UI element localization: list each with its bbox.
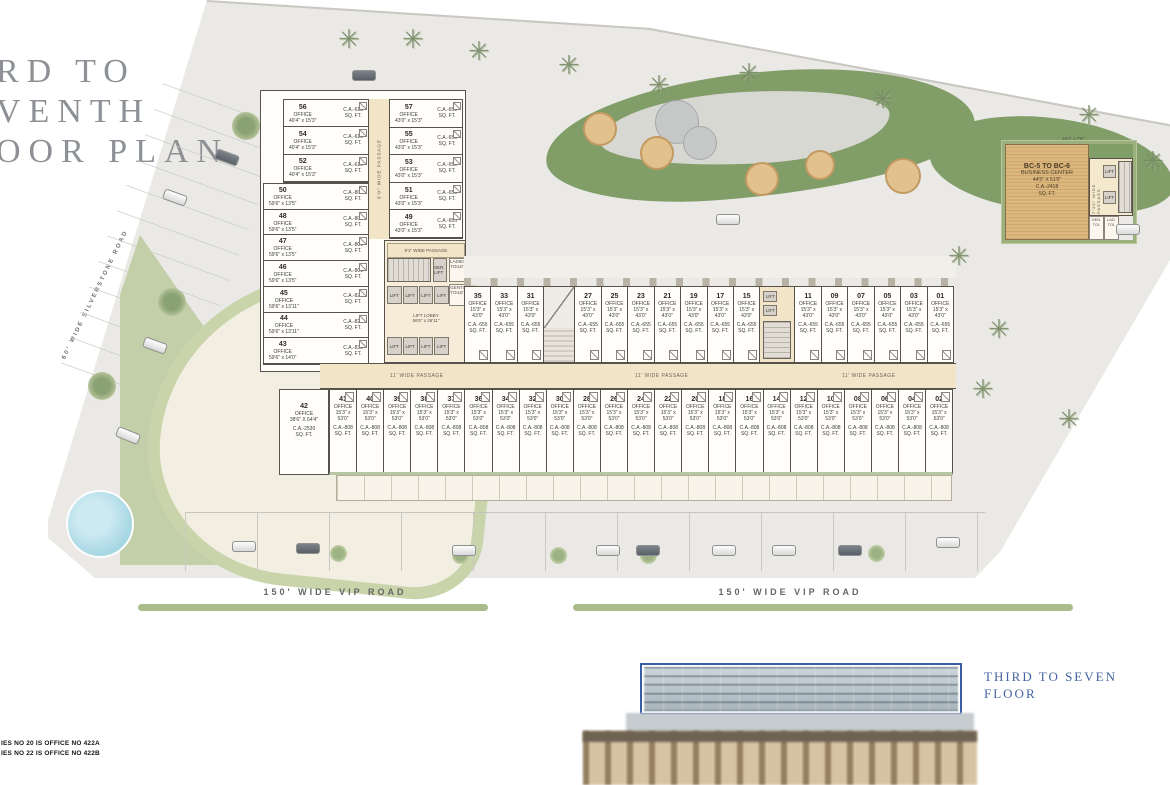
unit-number: 43	[269, 340, 296, 349]
unit-number: 27	[575, 292, 600, 301]
street-tree-icon	[330, 545, 347, 562]
palm-tree-icon: ✳	[402, 26, 424, 52]
unit-number: 41	[330, 395, 356, 404]
unit-number: 33	[491, 292, 516, 301]
seating-circle	[805, 150, 835, 180]
unit-dimensions: 59'6" x 13'5"	[269, 227, 296, 233]
office-unit-42: 42 OFFICE 38'6" X 64'4" C.A.-2530 SQ. FT…	[279, 389, 329, 475]
unit-number: 47	[269, 237, 296, 246]
office-unit: 34 OFFICE 15'3" x 53'0" C.A.-808 SQ. FT.	[492, 390, 519, 472]
passage-label: 11' WIDE PASSAGE	[635, 373, 689, 379]
service-lift: SER. LIFT	[433, 258, 447, 282]
office-unit: 47OFFICE59'6" x 13'5" C.A.-801SQ. FT.	[264, 235, 368, 261]
bc-toilets: GEN. TOI. LAD. TOI.	[1089, 216, 1119, 240]
office-unit: 54OFFICE40'4" x 15'3" C.A.-615SQ. FT.	[284, 127, 368, 154]
office-row-top: 35 OFFICE 15'3" x 43'0" C.A.-655 SQ. FT.…	[464, 286, 954, 363]
bc-title: BC-5 TO BC-6	[1006, 163, 1088, 170]
office-unit: 22 OFFICE 15'3" x 53'0" C.A.-808 SQ. FT.	[654, 390, 681, 472]
staircase	[543, 287, 574, 362]
unit-dimensions: 59'6" x 14'0"	[269, 355, 296, 361]
lift-bank-top: LIFT LIFT LIFT LIFT	[387, 286, 449, 304]
unit-number: 52	[289, 157, 316, 166]
unit-number: 44	[269, 314, 299, 323]
office-unit: 45OFFICE59'6" x 13'11" C.A.-829SQ. FT.	[264, 287, 368, 313]
palm-tree-icon: ✳	[948, 243, 970, 269]
unit-number: 15	[734, 292, 759, 301]
unit-dimensions: 59'6" x 13'11"	[269, 329, 299, 335]
unit-dimensions: 40'4" x 15'3"	[289, 118, 316, 124]
office-unit: 12 OFFICE 15'3" x 53'0" C.A.-808 SQ. FT.	[790, 390, 817, 472]
unit-area: C.A.-832	[343, 345, 363, 351]
seating-circle	[640, 136, 674, 170]
office-unit: 17 OFFICE 15'3" x 43'0" C.A.-655 SQ. FT.	[707, 287, 733, 362]
core-passage-label: 9'1" WIDE PASSAGE	[387, 243, 465, 258]
unit-number: 37	[438, 395, 464, 404]
unit-number: 34	[493, 395, 519, 404]
street-tree-icon	[868, 545, 885, 562]
unit-number: 16	[736, 395, 762, 404]
tree-icon	[232, 112, 260, 140]
unit-dimensions: 43'0" x 15'3"	[395, 228, 422, 234]
unit-number: 19	[681, 292, 706, 301]
office-unit: 46OFFICE59'6" x 13'5" C.A.-801SQ. FT.	[264, 261, 368, 287]
staircase	[1118, 161, 1132, 213]
palm-tree-icon: ✳	[648, 72, 670, 98]
unit-dimensions: 40'4" x 15'3"	[289, 172, 316, 178]
office-unit: 16 OFFICE 15'3" x 53'0" C.A.-808 SQ. FT.	[735, 390, 762, 472]
unit-number: 02	[926, 395, 952, 404]
bc-dimensions: 44'5" X 51'0"	[1006, 177, 1088, 184]
unit-number: 50	[269, 186, 296, 195]
elevation-ledge	[626, 713, 974, 733]
lift: LIFT	[403, 286, 418, 304]
unit-number: 40	[357, 395, 383, 404]
lift: LIFT	[1103, 165, 1116, 178]
unit-number: 21	[655, 292, 680, 301]
unit-number: 54	[289, 130, 316, 139]
lift: LIFT	[403, 337, 418, 355]
palm-tree-icon: ✳	[558, 52, 580, 78]
unit-area: C.A.-655	[437, 135, 457, 141]
office-unit: 53OFFICE43'0" x 15'3" C.A.-655SQ. FT.	[390, 155, 462, 183]
office-row-bottom: 41 OFFICE 15'3" x 53'0" C.A.-808 SQ. FT.…	[329, 389, 953, 475]
office-unit: 30 OFFICE 15'3" x 53'0" C.A.-808 SQ. FT.	[546, 390, 573, 472]
unit-number: 11	[795, 292, 820, 301]
unit-dimensions: 59'6" x 13'5"	[269, 201, 296, 207]
front-walkway	[464, 256, 956, 278]
unit-number: 36	[465, 395, 491, 404]
unit-number: 12	[791, 395, 817, 404]
office-unit: 32 OFFICE 15'3" x 53'0" C.A.-808 SQ. FT.	[519, 390, 546, 472]
lift: LIFT	[434, 286, 449, 304]
palm-tree-icon: ✳	[468, 38, 490, 64]
podium-fascia	[583, 731, 977, 742]
wing-passage: 9'0" WIDE PASSAGE	[369, 99, 389, 239]
unit-number: 51	[395, 186, 422, 195]
office-unit: 18 OFFICE 15'3" x 53'0" C.A.-808 SQ. FT.	[708, 390, 735, 472]
car-icon	[352, 70, 376, 81]
car-icon	[712, 545, 736, 556]
business-center-main: BC-5 TO BC-6 BUSINESS CENTER 44'5" X 51'…	[1005, 144, 1089, 240]
unit-number: 31	[518, 292, 543, 301]
office-unit: 37 OFFICE 15'3" x 53'0" C.A.-808 SQ. FT.	[437, 390, 464, 472]
unit-dimensions: 43'0" x 15'3"	[395, 173, 422, 179]
tree-icon	[88, 372, 116, 400]
unit-number: 46	[269, 263, 296, 272]
unit-number: 05	[875, 292, 900, 301]
office-unit: 23 OFFICE 15'3" x 43'0" C.A.-655 SQ. FT.	[627, 287, 653, 362]
office-unit: 24 OFFICE 15'3" x 53'0" C.A.-808 SQ. FT.	[627, 390, 654, 472]
unit-number: 08	[845, 395, 871, 404]
office-unit: 25 OFFICE 15'3" x 43'0" C.A.-655 SQ. FT.	[601, 287, 627, 362]
elevation-label: THIRD TO SEVEN FLOOR	[984, 668, 1164, 702]
gents-toilet: GEN. TOI.	[1089, 216, 1104, 240]
floor-plan-page: RD TOVENTHOOR PLAN 60' WIDE SILVERSTONE …	[0, 0, 1170, 785]
car-icon	[596, 545, 620, 556]
office-unit: 41 OFFICE 15'3" x 53'0" C.A.-808 SQ. FT.	[330, 390, 356, 472]
passage-label: 11' WIDE PASSAGE	[390, 373, 444, 379]
office-unit: 19 OFFICE 15'3" x 43'0" C.A.-655 SQ. FT.	[680, 287, 706, 362]
office-unit: 05 OFFICE 15'3" x 43'0" C.A.-655 SQ. FT.	[874, 287, 900, 362]
lift-lobby-label: LIFT LOBBY56'6" x 26'11"	[387, 313, 465, 323]
office-unit: 20 OFFICE 15'3" x 53'0" C.A.-808 SQ. FT.	[681, 390, 708, 472]
lift: LIFT	[434, 337, 449, 355]
lift-core: 9'1" WIDE PASSAGE SER. LIFT LADIES TOILE…	[384, 240, 466, 363]
wing-column-b: 57OFFICE43'0" x 15'3" C.A.-655SQ. FT. 55…	[389, 99, 463, 239]
unit-number: 09	[822, 292, 847, 301]
unit-number: 14	[764, 395, 790, 404]
passage-label: 11' WIDE PASSAGE	[842, 373, 896, 379]
palm-tree-icon: ✳	[1142, 148, 1164, 174]
office-unit: 55OFFICE43'0" x 15'3" C.A.-655SQ. FT.	[390, 128, 462, 156]
office-unit: 57OFFICE43'0" x 15'3" C.A.-655SQ. FT.	[390, 100, 462, 128]
car-icon	[636, 545, 660, 556]
unit-number: 24	[628, 395, 654, 404]
unit-number: 56	[289, 103, 316, 112]
title-line-2: VENTH	[0, 93, 151, 130]
unit-number: 22	[655, 395, 681, 404]
mid-lift-core: LIFT LIFT	[759, 287, 794, 362]
office-unit: 39 OFFICE 15'3" x 53'0" C.A.-808 SQ. FT.	[383, 390, 410, 472]
car-icon	[838, 545, 862, 556]
office-unit: 14 OFFICE 15'3" x 53'0" C.A.-808 SQ. FT.	[763, 390, 790, 472]
office-unit: 51OFFICE43'0" x 15'3" C.A.-655SQ. FT.	[390, 183, 462, 211]
parking-stalls	[185, 512, 985, 571]
bc-subtitle: BUSINESS CENTER	[1006, 170, 1088, 177]
unit-dimensions: 43'0" x 15'3"	[395, 201, 422, 207]
office-unit: 43OFFICE59'6" x 14'0" C.A.-832SQ. FT.	[264, 338, 368, 364]
unit-number: 10	[818, 395, 844, 404]
office-unit: 36 OFFICE 15'3" x 53'0" C.A.-808 SQ. FT.	[464, 390, 491, 472]
staircase	[387, 258, 431, 282]
office-unit: 27 OFFICE 15'3" x 43'0" C.A.-655 SQ. FT.	[574, 287, 600, 362]
unit-number: 28	[574, 395, 600, 404]
unit-number: 53	[395, 158, 422, 167]
unit-area: C.A.-615	[343, 162, 363, 168]
vip-road-label-left: 150' WIDE VIP ROAD	[240, 587, 430, 597]
central-passage: 11' WIDE PASSAGE 11' WIDE PASSAGE 11' WI…	[320, 363, 956, 389]
palm-tree-icon: ✳	[972, 376, 994, 402]
unit-dimensions: 40'4" x 15'3"	[289, 145, 316, 151]
unit-number: 20	[682, 395, 708, 404]
vip-road-label-right: 150' WIDE VIP ROAD	[695, 587, 885, 597]
office-unit: 02 OFFICE 15'3" x 53'0" C.A.-808 SQ. FT.	[925, 390, 952, 472]
office-unit: 44OFFICE59'6" x 13'11" C.A.-829SQ. FT.	[264, 313, 368, 339]
unit-number: 42	[280, 402, 328, 411]
lift: LIFT	[419, 337, 434, 355]
car-icon	[716, 214, 740, 225]
lift: LIFT	[763, 305, 777, 316]
unit-number: 17	[708, 292, 733, 301]
unit-number: 04	[899, 395, 925, 404]
office-unit: 28 OFFICE 15'3" x 53'0" C.A.-808 SQ. FT.	[573, 390, 600, 472]
unit-number: 25	[602, 292, 627, 301]
unit-number: 45	[269, 289, 299, 298]
lift: LIFT	[387, 286, 402, 304]
unit-dimensions: 38'6" X 64'4"	[280, 417, 328, 423]
office-unit: 04 OFFICE 15'3" x 53'0" C.A.-808 SQ. FT.	[898, 390, 925, 472]
seating-circle	[885, 158, 921, 194]
unit-area: C.A.-801	[343, 268, 363, 274]
road-median	[573, 604, 1073, 611]
office-unit: 40 OFFICE 15'3" x 53'0" C.A.-808 SQ. FT.	[356, 390, 383, 472]
street-tree-icon	[550, 547, 567, 564]
office-unit: 09 OFFICE 15'3" x 43'0" C.A.-655 SQ. FT.	[821, 287, 847, 362]
canopy-circle	[683, 126, 717, 160]
unit-number: 48	[269, 212, 296, 221]
unit-number: 01	[928, 292, 953, 301]
footnotes: IES NO 20 IS OFFICE NO 422A IES NO 22 IS…	[1, 739, 100, 759]
office-unit: 56OFFICE40'4" x 15'3" C.A.-615SQ. FT.	[284, 100, 368, 127]
office-unit: 26 OFFICE 15'3" x 53'0" C.A.-808 SQ. FT.	[600, 390, 627, 472]
bc-area: C.A.-2418	[1006, 184, 1088, 191]
car-icon	[936, 537, 960, 548]
palm-tree-icon: ✳	[338, 26, 360, 52]
lift: LIFT	[1103, 191, 1116, 204]
unit-number: 26	[601, 395, 627, 404]
bc-passage-label: 7'10" WIDE PASSAGE	[1091, 160, 1101, 214]
palm-tree-icon: ✳	[1078, 102, 1100, 128]
pool	[66, 490, 134, 558]
office-unit: 49OFFICE43'0" x 15'3" C.A.-655SQ. FT.	[390, 210, 462, 238]
unit-dimensions: 59'6" x 13'5"	[269, 252, 296, 258]
footnote-line-1: IES NO 20 IS OFFICE NO 422A	[1, 739, 100, 749]
unit-number: 39	[384, 395, 410, 404]
unit-dimensions: 59'6" x 13'5"	[269, 278, 296, 284]
unit-dimensions: 43'0" x 15'3"	[395, 145, 422, 151]
unit-dimensions: 43'0" x 15'3"	[395, 118, 422, 124]
car-icon	[232, 541, 256, 552]
car-icon	[772, 545, 796, 556]
seating-circle	[583, 112, 617, 146]
unit-number: 23	[628, 292, 653, 301]
lift-bank-bottom: LIFT LIFT LIFT LIFT	[387, 337, 449, 355]
unit-number: 06	[872, 395, 898, 404]
wing-column-a-bottom: 50OFFICE59'6" x 13'5" C.A.-801SQ. FT. 48…	[263, 183, 369, 365]
unit-number: 55	[395, 130, 422, 139]
office-unit: 48OFFICE59'6" x 13'5" C.A.-801SQ. FT.	[264, 210, 368, 236]
office-unit: 21 OFFICE 15'3" x 43'0" C.A.-655 SQ. FT.	[654, 287, 680, 362]
car-icon	[452, 545, 476, 556]
office-unit: 11 OFFICE 15'3" x 43'0" C.A.-655 SQ. FT.	[794, 287, 820, 362]
unit-number: 57	[395, 103, 422, 112]
lift: LIFT	[387, 337, 402, 355]
unit-number: 35	[465, 292, 490, 301]
road-median	[138, 604, 488, 611]
unit-number: 49	[395, 213, 422, 222]
tree-icon	[158, 288, 186, 316]
footnote-line-2: IES NO 22 IS OFFICE NO 422B	[1, 749, 100, 759]
unit-number: 18	[709, 395, 735, 404]
elevation-highlight-box	[640, 663, 962, 715]
office-unit: 52OFFICE40'4" x 15'3" C.A.-615SQ. FT.	[284, 155, 368, 182]
office-unit: 06 OFFICE 15'3" x 53'0" C.A.-808 SQ. FT.	[871, 390, 898, 472]
office-unit: 10 OFFICE 15'3" x 53'0" C.A.-808 SQ. FT.	[817, 390, 844, 472]
office-unit: 50OFFICE59'6" x 13'5" C.A.-801SQ. FT.	[264, 184, 368, 210]
lift: LIFT	[763, 291, 777, 302]
office-unit: 08 OFFICE 15'3" x 53'0" C.A.-808 SQ. FT.	[844, 390, 871, 472]
palm-tree-icon: ✳	[988, 316, 1010, 342]
wing-column-a-top: 56OFFICE40'4" x 15'3" C.A.-615SQ. FT. 54…	[283, 99, 369, 183]
veranda-band	[336, 475, 952, 501]
seating-circle	[745, 162, 779, 196]
office-unit: 38 OFFICE 15'3" x 53'0" C.A.-808 SQ. FT.	[410, 390, 437, 472]
office-unit: 07 OFFICE 15'3" x 43'0" C.A.-655 SQ. FT.	[847, 287, 873, 362]
unit-number: 32	[520, 395, 546, 404]
unit-number: 03	[901, 292, 926, 301]
office-unit: 31 OFFICE 15'3" x 43'0" C.A.-655 SQ. FT.	[517, 287, 543, 362]
office-unit: 33 OFFICE 15'3" x 43'0" C.A.-655 SQ. FT.	[490, 287, 516, 362]
office-unit: 03 OFFICE 15'3" x 43'0" C.A.-655 SQ. FT.	[900, 287, 926, 362]
palm-tree-icon: ✳	[738, 60, 760, 86]
office-unit: 01 OFFICE 15'3" x 43'0" C.A.-655 SQ. FT.	[927, 287, 953, 362]
office-unit: 35 OFFICE 15'3" x 43'0" C.A.-655 SQ. FT.	[465, 287, 490, 362]
bc-annex: 7'10" WIDE PASSAGE LIFT LIFT	[1089, 158, 1133, 216]
unit-number: 30	[547, 395, 573, 404]
unit-area: C.A.-801	[343, 242, 363, 248]
unit-number: 07	[848, 292, 873, 301]
unit-number: 38	[411, 395, 437, 404]
unit-area: C.A.-655	[437, 218, 457, 224]
unit-dimensions: 59'6" x 13'11"	[269, 304, 299, 310]
lift: LIFT	[419, 286, 434, 304]
palm-tree-icon: ✳	[1058, 406, 1080, 432]
title-line-1: RD TO	[0, 53, 136, 90]
car-icon	[296, 543, 320, 554]
palm-tree-icon: ✳	[872, 86, 894, 112]
office-unit: 15 OFFICE 15'3" x 43'0" C.A.-655 SQ. FT.	[733, 287, 759, 362]
car-icon	[1116, 224, 1140, 235]
balcony-ticks-top	[464, 278, 954, 286]
staircase	[763, 321, 791, 359]
